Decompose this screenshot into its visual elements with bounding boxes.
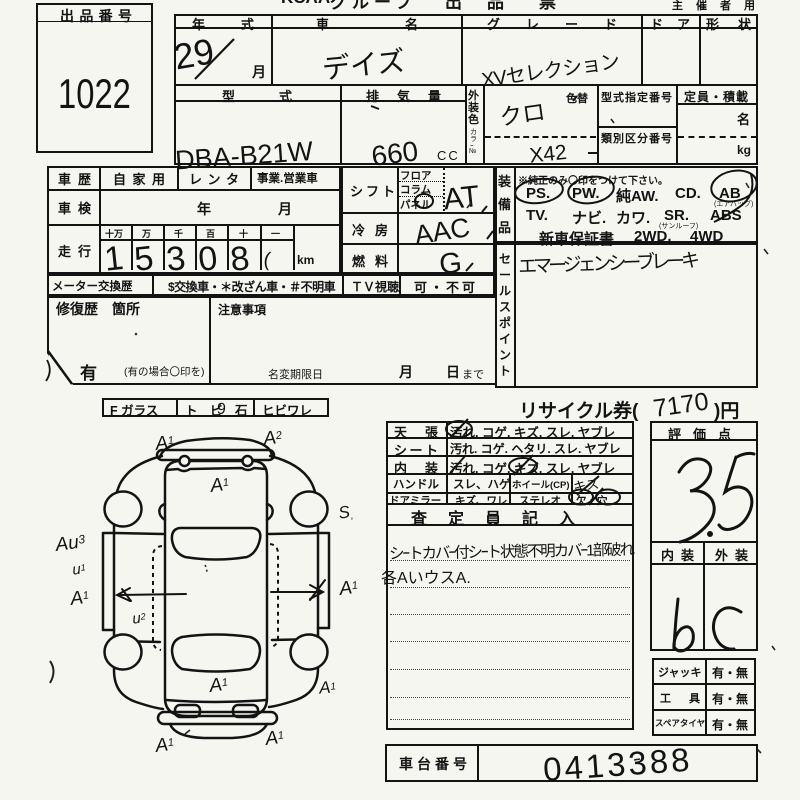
svg-text:Au3: Au3 — [53, 531, 87, 556]
svg-text:A1: A1 — [208, 474, 231, 498]
svg-text:A1: A1 — [337, 577, 360, 601]
svg-text:A1: A1 — [68, 587, 91, 611]
svg-text:A2: A2 — [261, 427, 284, 451]
svg-text:A1: A1 — [207, 674, 230, 698]
svg-text:u2: u2 — [132, 609, 147, 627]
svg-text:A1: A1 — [153, 734, 176, 758]
svg-text:A1: A1 — [263, 727, 286, 751]
svg-text:u1: u1 — [72, 560, 87, 578]
svg-text:A1: A1 — [153, 432, 176, 456]
svg-text:7170: 7170 — [651, 387, 710, 422]
svg-text:A1: A1 — [317, 677, 336, 697]
svg-text:S,: S, — [337, 502, 354, 524]
